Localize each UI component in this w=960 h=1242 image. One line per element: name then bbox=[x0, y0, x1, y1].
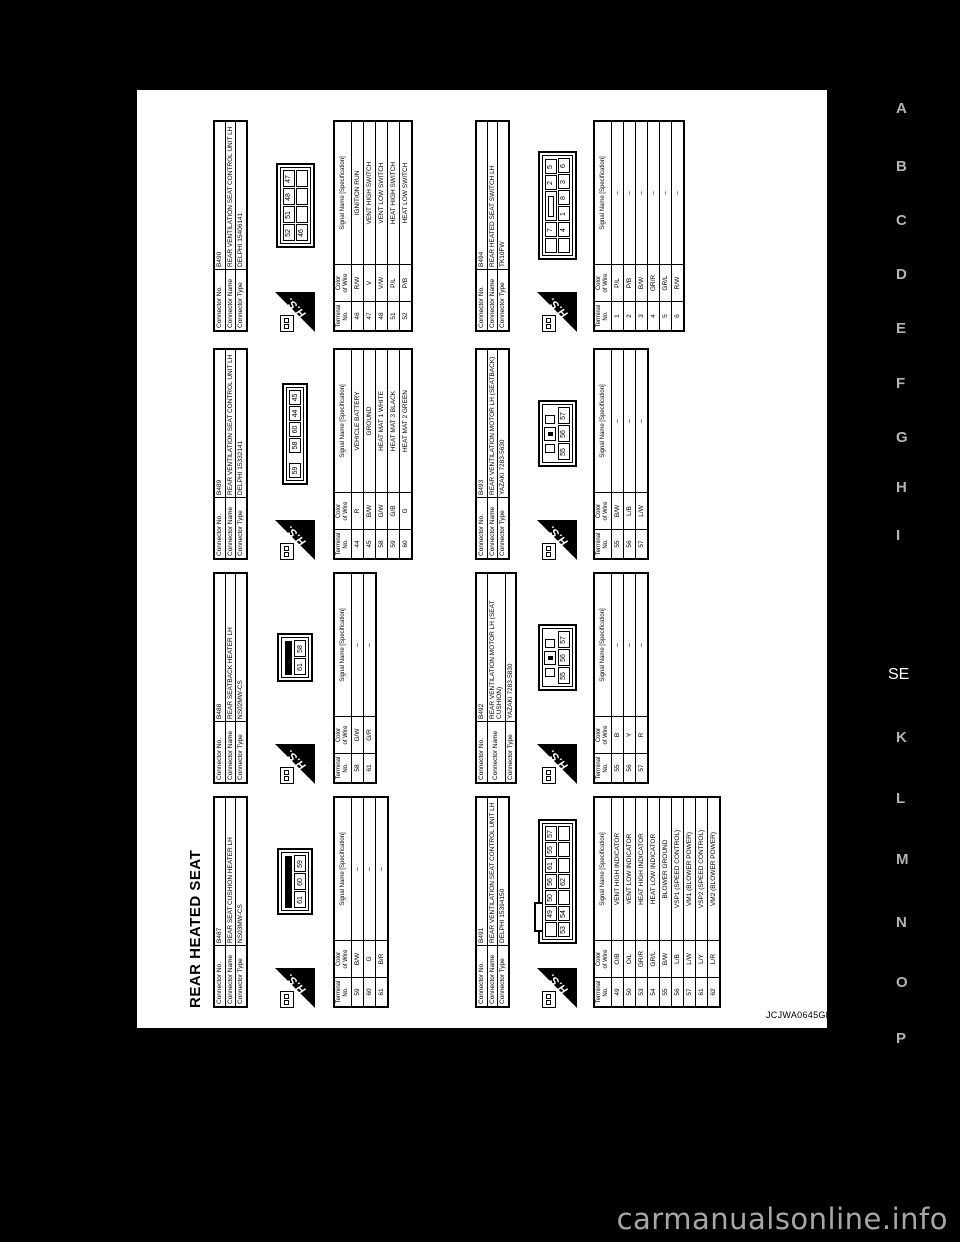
terminal-no: 4 bbox=[648, 302, 660, 332]
terminal-table: Terminal No.Color of WireSignal Name [Sp… bbox=[333, 348, 413, 560]
signal-name: HEAT LOW SWITCH bbox=[400, 121, 413, 265]
connector-name-value: REAR VENTILATION SEAT CONTROL UNIT LH bbox=[225, 349, 236, 498]
wire-color: R bbox=[352, 493, 364, 530]
pin-cell: 5 bbox=[545, 160, 557, 175]
margin-letter-H: H bbox=[896, 479, 907, 496]
connector-wing bbox=[545, 639, 555, 648]
connector-pin-diagram: 555657 bbox=[538, 625, 577, 692]
pin-inner: 555657 bbox=[542, 629, 573, 688]
wire-color: L/B bbox=[672, 941, 684, 978]
margin-letter-M: M bbox=[896, 851, 909, 868]
connector-name-value: REAR VENTILATION SEAT CONTROL UNIT LH bbox=[487, 797, 498, 946]
connector-name-label: Connector Name bbox=[225, 722, 236, 784]
signal-name: – bbox=[660, 121, 672, 265]
pin-cell: 61 bbox=[545, 859, 557, 874]
pin-cell: 51 bbox=[283, 207, 295, 224]
info-row: Connector No.B494 bbox=[476, 121, 487, 331]
terminal-no: 56 bbox=[624, 754, 636, 784]
terminal-table: Terminal No.Color of WireSignal Name [Sp… bbox=[593, 796, 721, 1008]
info-row: Connector No.B493 bbox=[476, 349, 487, 559]
connector-no-value: B492 bbox=[476, 573, 487, 722]
connector-no-label: Connector No. bbox=[214, 270, 225, 332]
terminal-row: 56Y– bbox=[624, 573, 636, 783]
connector-no-value: B491 bbox=[476, 797, 487, 946]
connector-view-band: H.S.555657 bbox=[521, 348, 593, 560]
pin-cell bbox=[558, 891, 570, 906]
connector-type-value: YAZAKI 7283-5830 bbox=[505, 573, 516, 722]
signal-name: HEAT MAT 3 BLACK bbox=[388, 349, 400, 493]
pin-cell: 55 bbox=[558, 668, 570, 685]
terminal-no: 48 bbox=[376, 302, 388, 332]
terminal-no: 52 bbox=[400, 302, 413, 332]
wire-color: B/R bbox=[376, 941, 389, 978]
terminal-no-header: Terminal No. bbox=[334, 978, 352, 1008]
signal-name: – bbox=[624, 573, 636, 717]
terminal-table: Terminal No.Color of WireSignal Name [Sp… bbox=[333, 120, 413, 332]
terminal-no-header: Terminal No. bbox=[594, 978, 612, 1008]
terminal-no-header: Terminal No. bbox=[334, 530, 352, 560]
pin-key-slot bbox=[545, 192, 557, 222]
pin-cell bbox=[296, 171, 308, 188]
pin-shell: 6158 bbox=[277, 634, 313, 683]
terminal-no-header: Terminal No. bbox=[334, 754, 352, 784]
connector-view-band: H.S.72541836 bbox=[521, 120, 593, 332]
info-row: Connector NameREAR VENTILATION SEAT CONT… bbox=[487, 797, 498, 1007]
pin-cell: 44 bbox=[289, 406, 301, 421]
connector-view-band: H.S.5958604445 bbox=[259, 348, 331, 560]
pin-shell: 555657 bbox=[538, 401, 577, 468]
wire-color: O/L bbox=[624, 941, 636, 978]
connector-name-label: Connector Name bbox=[225, 946, 236, 1008]
pin-shell: 5958604445 bbox=[282, 383, 308, 485]
signal-name: HEAT HIGH SWITCH bbox=[388, 121, 400, 265]
info-row: Connector NameREAR VENTILATION MOTOR LH … bbox=[487, 349, 498, 559]
connector-wing bbox=[545, 415, 555, 424]
color-of-wire-header: Color of Wire bbox=[334, 493, 352, 530]
pin-inner: 495056615557535462 bbox=[542, 824, 573, 941]
margin-letter-L: L bbox=[896, 790, 905, 807]
pin-cell: 58 bbox=[289, 438, 301, 453]
info-row: Connector No.B488 bbox=[214, 573, 225, 783]
pin-shell: 555657 bbox=[538, 625, 577, 692]
terminal-no-header: Terminal No. bbox=[334, 302, 352, 332]
pin-shell: 616059 bbox=[277, 849, 313, 916]
connector-no-label: Connector No. bbox=[476, 498, 487, 560]
terminal-no: 60 bbox=[400, 530, 413, 560]
connector-name-value: REAR VENTILATION MOTOR LH (SEAT CUSHION) bbox=[487, 573, 505, 722]
pin-cell bbox=[558, 843, 570, 858]
terminal-row: 60GHEAT MAT 2 GREEN bbox=[400, 349, 413, 559]
terminal-row: 59B/W– bbox=[352, 797, 364, 1007]
signal-name: – bbox=[636, 349, 649, 493]
signal-name: VM1 (BLOWER POWER) bbox=[684, 797, 696, 941]
info-row: Connector TypeDELPHI 15406141 bbox=[236, 121, 247, 331]
wire-color: B/W bbox=[612, 493, 624, 530]
wire-color: L/B bbox=[624, 493, 636, 530]
signal-name: IGNITION RUN bbox=[352, 121, 364, 265]
wire-color: R/W bbox=[672, 265, 685, 302]
connector-no-value: B493 bbox=[476, 349, 487, 498]
terminal-row: 3B/W– bbox=[636, 121, 648, 331]
pin-cell bbox=[296, 189, 308, 206]
pin-cell: 59 bbox=[294, 856, 306, 873]
terminal-header-row: Terminal No.Color of WireSignal Name [Sp… bbox=[594, 797, 612, 1007]
signal-name-header: Signal Name [Specification] bbox=[334, 573, 352, 717]
pin-cell: 54 bbox=[558, 907, 570, 922]
terminal-row: 45B/WGROUND bbox=[364, 349, 376, 559]
pin-cell: 50 bbox=[545, 891, 557, 906]
terminal-no: 56 bbox=[672, 978, 684, 1008]
signal-name-header: Signal Name [Specification] bbox=[594, 797, 612, 941]
wire-color: B bbox=[612, 717, 624, 754]
motor-key-row bbox=[544, 407, 556, 461]
connector-type-value: YAZAKI 7283-5630 bbox=[498, 349, 509, 498]
terminal-row: 55B/W– bbox=[612, 349, 624, 559]
connector-name-value: REAR SEAT CUSHION HEATER LH bbox=[225, 797, 236, 946]
watermark-text: carmanualsonline.info bbox=[617, 1202, 948, 1236]
harness-side-view-icon: H.S. bbox=[275, 292, 315, 332]
connector-mini-icon bbox=[280, 315, 294, 332]
connector-pin-diagram: 5251484746 bbox=[276, 164, 315, 249]
terminal-no: 59 bbox=[352, 978, 364, 1008]
info-row: Connector TypeTK10FW bbox=[498, 121, 509, 331]
pin-gap bbox=[289, 454, 301, 462]
signal-name: VENT LOW SWITCH bbox=[376, 121, 388, 265]
terminal-table: Terminal No.Color of WireSignal Name [Sp… bbox=[593, 348, 649, 560]
connector-info-table: Connector No.B489Connector NameREAR VENT… bbox=[213, 348, 248, 560]
terminal-no: 3 bbox=[636, 302, 648, 332]
terminal-table: Terminal No.Color of WireSignal Name [Sp… bbox=[593, 120, 685, 332]
connector-view-band: H.S.5251484746 bbox=[259, 120, 331, 332]
connector-pin-diagram: 72541836 bbox=[538, 152, 577, 261]
terminal-no: 56 bbox=[624, 530, 636, 560]
signal-name-header: Signal Name [Specification] bbox=[334, 797, 352, 941]
info-row: Connector NameREAR VENTILATION SEAT CONT… bbox=[225, 121, 236, 331]
terminal-row: 61B/R– bbox=[376, 797, 389, 1007]
terminal-no: 45 bbox=[364, 530, 376, 560]
margin-letter-C: C bbox=[896, 212, 907, 229]
pin-cell: 58 bbox=[294, 641, 306, 658]
terminal-table: Terminal No.Color of WireSignal Name [Sp… bbox=[333, 796, 389, 1008]
signal-name: VSP1 (SPEED CONTROL) bbox=[672, 797, 684, 941]
info-row: Connector NameREAR SEAT CUSHION HEATER L… bbox=[225, 797, 236, 1007]
pin-cell: 55 bbox=[558, 444, 570, 461]
connector-type-label: Connector Type bbox=[236, 498, 247, 560]
connector-group-B487: Connector No.B487Connector NameREAR SEAT… bbox=[213, 796, 248, 1008]
color-of-wire-header: Color of Wire bbox=[594, 717, 612, 754]
terminal-row: 58G/WHEAT MAT 1 WHITE bbox=[376, 349, 388, 559]
wire-color: L/W bbox=[636, 493, 649, 530]
connector-info-table: Connector No.B488Connector NameREAR SEAT… bbox=[213, 572, 248, 784]
pin-cell: 1 bbox=[558, 207, 570, 222]
pin-cell: 55 bbox=[545, 843, 557, 858]
signal-name: – bbox=[624, 121, 636, 265]
pin-cell: 46 bbox=[296, 225, 308, 242]
terminal-row: 61G/R– bbox=[364, 573, 377, 783]
connector-name-label: Connector Name bbox=[487, 498, 498, 560]
info-row: Connector No.B492 bbox=[476, 573, 487, 783]
connector-info-table: Connector No.B494Connector NameREAR HEAT… bbox=[475, 120, 510, 332]
connector-group-B491: Connector No.B491Connector NameREAR VENT… bbox=[475, 796, 510, 1008]
signal-name: BLOWER GROUND bbox=[660, 797, 672, 941]
connector-name-label: Connector Name bbox=[225, 498, 236, 560]
terminal-no: 6 bbox=[672, 302, 685, 332]
pin-inner: 72541836 bbox=[542, 156, 573, 257]
margin-letter-N: N bbox=[896, 914, 907, 931]
pin-cell: 7 bbox=[545, 223, 557, 238]
signal-name-header: Signal Name [Specification] bbox=[594, 121, 612, 265]
pin-cell bbox=[296, 207, 308, 224]
pin-inner: 616059 bbox=[281, 853, 309, 912]
connector-type-label: Connector Type bbox=[498, 946, 509, 1008]
connector-type-label: Connector Type bbox=[236, 722, 247, 784]
pin-inner: 5958604445 bbox=[286, 387, 304, 481]
signal-name: VENT HIGH INDICATOR bbox=[612, 797, 624, 941]
harness-side-view-icon: H.S. bbox=[275, 520, 315, 560]
wire-color: V/W bbox=[376, 265, 388, 302]
margin-letter-A: A bbox=[896, 100, 907, 117]
info-row: Connector NameREAR VENTILATION MOTOR LH … bbox=[487, 573, 505, 783]
terminal-no: 55 bbox=[660, 978, 672, 1008]
terminal-row: 57R– bbox=[636, 573, 649, 783]
info-row: Connector No.B491 bbox=[476, 797, 487, 1007]
pin-row: 495056615557 bbox=[544, 826, 557, 938]
harness-side-view-icon: H.S. bbox=[537, 292, 577, 332]
info-row: Connector NameREAR SEATBACK HEATER LH bbox=[225, 573, 236, 783]
pin-cell: 6 bbox=[558, 159, 570, 174]
terminal-header-row: Terminal No.Color of WireSignal Name [Sp… bbox=[594, 349, 612, 559]
terminal-no: 60 bbox=[364, 978, 376, 1008]
connector-view-band: H.S.6158 bbox=[259, 572, 331, 784]
connector-mini-icon bbox=[542, 315, 556, 332]
terminal-no: 54 bbox=[648, 978, 660, 1008]
signal-name: – bbox=[612, 573, 624, 717]
wire-color: B/W bbox=[364, 493, 376, 530]
connector-key-slot bbox=[544, 651, 556, 665]
pin-cell bbox=[558, 827, 570, 842]
terminal-no: 5 bbox=[660, 302, 672, 332]
pin-cell bbox=[558, 859, 570, 874]
pin-shell: 72541836 bbox=[538, 152, 577, 261]
pin-cell: 61 bbox=[294, 892, 306, 909]
wire-color: Y bbox=[624, 717, 636, 754]
wire-color: G/W bbox=[352, 717, 364, 754]
connector-type-label: Connector Type bbox=[498, 270, 509, 332]
terminal-no: 49 bbox=[612, 978, 624, 1008]
pin-cell: 45 bbox=[289, 390, 301, 405]
terminal-no: 58 bbox=[376, 530, 388, 560]
margin-letter-B: B bbox=[896, 158, 907, 175]
connector-type-value: DELPHI 15394150 bbox=[498, 797, 509, 946]
terminal-header-row: Terminal No.Color of WireSignal Name [Sp… bbox=[334, 573, 352, 783]
signal-name-header: Signal Name [Specification] bbox=[594, 573, 612, 717]
terminal-header-row: Terminal No.Color of WireSignal Name [Sp… bbox=[334, 797, 352, 1007]
connector-key-bar bbox=[285, 641, 292, 675]
connector-group-B490: Connector No.B490Connector NameREAR VENT… bbox=[213, 120, 248, 332]
connector-no-label: Connector No. bbox=[214, 946, 225, 1008]
terminal-row: 62L/RVM2 (BLOWER POWER) bbox=[708, 797, 721, 1007]
connector-wing bbox=[545, 668, 555, 677]
signal-name: – bbox=[672, 121, 685, 265]
pin-cell: 60 bbox=[294, 874, 306, 891]
wire-color: GR/L bbox=[648, 941, 660, 978]
terminal-row: 58G/W– bbox=[352, 573, 364, 783]
terminal-header-row: Terminal No.Color of WireSignal Name [Sp… bbox=[594, 121, 612, 331]
signal-name: – bbox=[612, 349, 624, 493]
connector-view-band: H.S.616059 bbox=[259, 796, 331, 1008]
wire-color: B/W bbox=[352, 941, 364, 978]
wire-color: G/B bbox=[388, 493, 400, 530]
wire-color: P/L bbox=[612, 265, 624, 302]
terminal-row: 52P/BHEAT LOW SWITCH bbox=[400, 121, 413, 331]
pin-row: 41836 bbox=[557, 158, 570, 254]
signal-name: – bbox=[624, 349, 636, 493]
connector-group-B494: Connector No.B494Connector NameREAR HEAT… bbox=[475, 120, 510, 332]
connector-name-label: Connector Name bbox=[225, 270, 236, 332]
manual-page-screenshot: { "title": "REAR HEATED SEAT", "figure_c… bbox=[0, 0, 960, 1242]
connector-no-label: Connector No. bbox=[476, 722, 487, 784]
terminal-no: 58 bbox=[352, 754, 364, 784]
terminal-no: 57 bbox=[636, 754, 649, 784]
signal-name: – bbox=[636, 121, 648, 265]
pin-cell: 3 bbox=[558, 175, 570, 190]
terminal-row: 55B/WBLOWER GROUND bbox=[660, 797, 672, 1007]
terminal-header-row: Terminal No.Color of WireSignal Name [Sp… bbox=[334, 349, 352, 559]
terminal-row: 1P/L– bbox=[612, 121, 624, 331]
color-of-wire-header: Color of Wire bbox=[594, 493, 612, 530]
harness-side-view-icon: H.S. bbox=[537, 744, 577, 784]
wire-color: GR/R bbox=[636, 941, 648, 978]
info-row: Connector TypeDELPHI 15332141 bbox=[236, 349, 247, 559]
wire-color: B/W bbox=[660, 941, 672, 978]
connector-view-band: H.S.495056615557535462 bbox=[521, 796, 593, 1008]
harness-side-view-icon: H.S. bbox=[275, 744, 315, 784]
signal-name: – bbox=[612, 121, 624, 265]
connector-no-label: Connector No. bbox=[214, 498, 225, 560]
pin-row: 555657 bbox=[557, 407, 570, 461]
connector-group-B489: Connector No.B489Connector NameREAR VENT… bbox=[213, 348, 248, 560]
info-row: Connector TypeYAZAKI 7283-5630 bbox=[498, 349, 509, 559]
pin-cell bbox=[558, 239, 570, 254]
harness-side-view-icon: H.S. bbox=[275, 968, 315, 1008]
connector-pin-diagram: 555657 bbox=[538, 401, 577, 468]
color-of-wire-header: Color of Wire bbox=[334, 265, 352, 302]
terminal-row: 59G/BHEAT MAT 3 BLACK bbox=[388, 349, 400, 559]
wire-color: P/L bbox=[388, 265, 400, 302]
signal-name: VSP2 (SPEED CONTROL) bbox=[696, 797, 708, 941]
connector-no-value: B487 bbox=[214, 797, 225, 946]
signal-name: VENT LOW INDICATOR bbox=[624, 797, 636, 941]
pin-row: 5958604445 bbox=[289, 390, 302, 479]
signal-name: – bbox=[648, 121, 660, 265]
connector-type-label: Connector Type bbox=[505, 722, 516, 784]
signal-name: VENT HIGH SWITCH bbox=[364, 121, 376, 265]
connector-no-value: B488 bbox=[214, 573, 225, 722]
pin-cell: 56 bbox=[558, 426, 570, 443]
connector-view-band: H.S.555657 bbox=[521, 572, 593, 784]
terminal-row: 61L/YVSP2 (SPEED CONTROL) bbox=[696, 797, 708, 1007]
terminal-no: 55 bbox=[612, 754, 624, 784]
connector-type-value: NS03MW-CS bbox=[236, 797, 247, 946]
connector-group-B493: Connector No.B493Connector NameREAR VENT… bbox=[475, 348, 510, 560]
connector-no-label: Connector No. bbox=[476, 270, 487, 332]
wire-color: O/B bbox=[612, 941, 624, 978]
pin-cell: 57 bbox=[545, 827, 557, 842]
wire-color: G bbox=[400, 493, 413, 530]
pin-shell: 5251484746 bbox=[276, 164, 315, 249]
signal-name: HEAT MAT 2 GREEN bbox=[400, 349, 413, 493]
connector-mini-icon bbox=[542, 767, 556, 784]
signal-name: GROUND bbox=[364, 349, 376, 493]
connector-name-label: Connector Name bbox=[487, 270, 498, 332]
pin-row: 725 bbox=[544, 158, 557, 254]
info-row: Connector No.B489 bbox=[214, 349, 225, 559]
info-row: Connector TypeNS03MW-CS bbox=[236, 797, 247, 1007]
terminal-row: 47VVENT HIGH SWITCH bbox=[364, 121, 376, 331]
terminal-table: Terminal No.Color of WireSignal Name [Sp… bbox=[593, 572, 649, 784]
section-title: REAR HEATED SEAT bbox=[187, 850, 204, 1008]
terminal-row: 2P/B– bbox=[624, 121, 636, 331]
connector-type-value: TK10FW bbox=[498, 121, 509, 270]
figure-code: JCJWA0645GB bbox=[766, 1010, 832, 1020]
terminal-no: 50 bbox=[624, 978, 636, 1008]
pin-cell: 56 bbox=[558, 650, 570, 667]
wire-color: V bbox=[364, 265, 376, 302]
terminal-no: 59 bbox=[388, 530, 400, 560]
signal-name-header: Signal Name [Specification] bbox=[594, 349, 612, 493]
pin-cell: 48 bbox=[283, 189, 295, 206]
signal-name: HEAT MAT 1 WHITE bbox=[376, 349, 388, 493]
info-row: Connector TypeDELPHI 15394150 bbox=[498, 797, 509, 1007]
terminal-row: 55B– bbox=[612, 573, 624, 783]
signal-name: – bbox=[352, 573, 364, 717]
color-of-wire-header: Color of Wire bbox=[334, 941, 352, 978]
margin-letter-D: D bbox=[896, 266, 907, 283]
connector-info-table: Connector No.B492Connector NameREAR VENT… bbox=[475, 572, 517, 784]
info-row: Connector NameREAR VENTILATION SEAT CONT… bbox=[225, 349, 236, 559]
pin-cell: 2 bbox=[545, 176, 557, 191]
connector-type-label: Connector Type bbox=[236, 270, 247, 332]
terminal-row: 44RVEHICLE BATTERY bbox=[352, 349, 364, 559]
pin-cell: 47 bbox=[283, 171, 295, 188]
wire-color: L/Y bbox=[696, 941, 708, 978]
terminal-no: 55 bbox=[612, 530, 624, 560]
pin-cell: 49 bbox=[545, 907, 557, 922]
connector-tab bbox=[534, 903, 542, 933]
terminal-no: 61 bbox=[696, 978, 708, 1008]
terminal-row: 57L/WVM1 (BLOWER POWER) bbox=[684, 797, 696, 1007]
terminal-no: 2 bbox=[624, 302, 636, 332]
margin-letter-I: I bbox=[896, 527, 900, 544]
info-row: Connector TypeYAZAKI 7283-5830 bbox=[505, 573, 516, 783]
signal-name: VM2 (BLOWER POWER) bbox=[708, 797, 721, 941]
connector-no-value: B494 bbox=[476, 121, 487, 270]
pin-inner: 6158 bbox=[281, 638, 309, 679]
terminal-no: 47 bbox=[364, 302, 376, 332]
connector-info-table: Connector No.B491Connector NameREAR VENT… bbox=[475, 796, 510, 1008]
signal-name: – bbox=[636, 573, 649, 717]
color-of-wire-header: Color of Wire bbox=[594, 265, 612, 302]
terminal-row: 48V/WVENT LOW SWITCH bbox=[376, 121, 388, 331]
pin-cell: 57 bbox=[558, 632, 570, 649]
signal-name: – bbox=[364, 573, 377, 717]
pin-cell: 4 bbox=[558, 223, 570, 238]
signal-name-header: Signal Name [Specification] bbox=[334, 121, 352, 265]
pin-row: 616059 bbox=[294, 855, 307, 909]
pin-cell: 61 bbox=[294, 659, 306, 676]
margin-letter-P: P bbox=[896, 1030, 906, 1047]
terminal-no: 57 bbox=[636, 530, 649, 560]
